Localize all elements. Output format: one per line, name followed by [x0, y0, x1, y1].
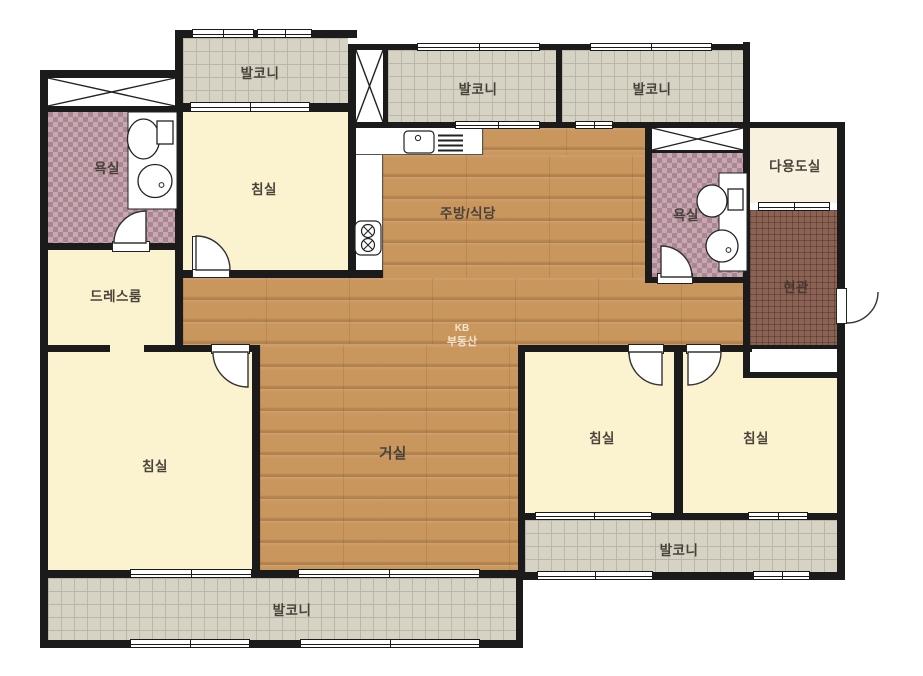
window [753, 571, 810, 580]
room-bathroom-left [48, 112, 175, 243]
wall [348, 122, 750, 128]
window [298, 569, 480, 578]
closet-top-left [48, 78, 175, 106]
window [455, 121, 540, 129]
wall [743, 42, 750, 378]
wall [743, 372, 844, 378]
wall [40, 70, 48, 648]
room-label-bedroom-mid: 침실 [589, 427, 615, 447]
room-label-dressroom: 드레스룸 [90, 285, 142, 305]
floor-kitchen-top [483, 128, 645, 155]
room-label-balcony-bottom-left: 발코니 [273, 599, 312, 619]
kitchen-counter-top [352, 128, 483, 155]
wall [645, 122, 652, 283]
wall [837, 322, 845, 580]
room-label-balcony-top-mid: 발코니 [459, 78, 498, 98]
door-threshold [112, 241, 150, 252]
wall [652, 150, 743, 153]
window [758, 202, 830, 211]
wall [175, 30, 183, 352]
room-label-utility: 다용도실 [769, 155, 821, 175]
room-label-bathroom-right: 욕실 [673, 204, 699, 224]
wall [48, 106, 175, 112]
window [417, 43, 540, 51]
window [575, 121, 613, 129]
dressroom-opening [110, 345, 144, 353]
room-label-bedroom-top: 침실 [251, 178, 277, 198]
wall [674, 352, 683, 513]
window [130, 569, 252, 578]
room-label-bedroom-right: 침실 [743, 427, 769, 447]
wall [383, 44, 388, 128]
kb-watermark: KB 부동산 [447, 323, 477, 349]
door-leaf [192, 236, 202, 270]
room-label-bedroom-left: 침실 [142, 455, 168, 475]
floor-kitchen [383, 155, 645, 283]
front-door-arc [847, 292, 878, 323]
room-label-kitchen: 주방/식당 [440, 202, 496, 222]
door-threshold [657, 273, 693, 284]
door-threshold [211, 344, 250, 354]
front-door-leaf [836, 288, 847, 324]
wall [518, 345, 525, 580]
window [190, 102, 310, 112]
kitchen-counter-side [352, 155, 383, 273]
window [257, 29, 312, 38]
room-label-entrance: 현관 [783, 276, 809, 296]
closet-top-right [652, 128, 743, 150]
window [748, 512, 808, 520]
window [130, 639, 250, 648]
wall [750, 345, 837, 349]
wall [743, 122, 845, 128]
room-label-living: 거실 [379, 443, 407, 464]
kb-watermark-line1: KB [447, 323, 477, 336]
window [300, 639, 480, 648]
wall [516, 570, 523, 648]
wall [252, 345, 260, 572]
wall [348, 44, 356, 278]
window [535, 512, 652, 520]
exterior-notch [750, 349, 837, 372]
duct-shaft [356, 50, 383, 122]
wall [556, 44, 562, 128]
window [590, 43, 712, 51]
door-threshold [628, 344, 664, 354]
kb-watermark-line2: 부동산 [447, 335, 477, 349]
room-label-balcony-top-right: 발코니 [633, 78, 672, 98]
door-threshold [686, 344, 721, 354]
room-label-balcony-top-left: 발코니 [241, 62, 280, 82]
wall [40, 70, 183, 78]
room-label-bathroom-left: 욕실 [94, 157, 120, 177]
window [192, 29, 254, 38]
floor-plan: 발코니 발코니 발코니 욕실 침실 주방/식당 욕실 다용도실 현관 드레스룸 … [0, 0, 923, 676]
window [537, 571, 653, 580]
wall [837, 122, 845, 292]
room-label-balcony-bottom-right: 발코니 [660, 539, 699, 559]
